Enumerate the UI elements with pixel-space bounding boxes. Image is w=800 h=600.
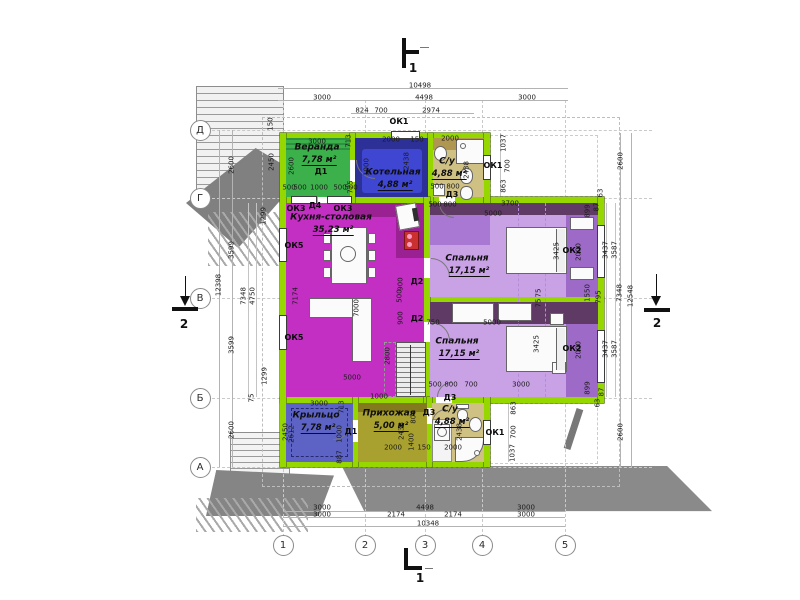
dim-label: 3700 bbox=[501, 201, 519, 208]
dim-label: 1037 bbox=[501, 134, 508, 152]
section-mark-bottom-tick bbox=[425, 568, 433, 569]
room-area-hallway: 5,00 м² bbox=[374, 422, 409, 432]
dim-label: 75 bbox=[536, 299, 543, 308]
dim-label: 10348 bbox=[417, 521, 439, 528]
stove-burner-2 bbox=[407, 242, 412, 247]
chair-2 bbox=[323, 250, 331, 261]
dim-label: 863 bbox=[501, 179, 508, 192]
section-label-left: 2 bbox=[180, 317, 188, 331]
opening-tag-д3: Д3 bbox=[446, 191, 459, 199]
room-area-bath-bottom: 4,88 м² bbox=[435, 418, 470, 428]
section-mark-top-bar-h bbox=[406, 50, 419, 54]
grid-axis-h-5 bbox=[212, 467, 652, 468]
dim-label: 500 bbox=[397, 289, 404, 302]
dim-label: 87 bbox=[599, 388, 606, 397]
dim-label: 75 bbox=[249, 394, 256, 403]
section-mark-bottom-bar-h bbox=[404, 566, 422, 570]
dim-label: 4750 bbox=[250, 287, 257, 305]
dim-label: 1000 bbox=[370, 394, 388, 401]
toilet-top-b bbox=[460, 186, 473, 200]
chair-6 bbox=[368, 267, 376, 278]
dim-label: 2000 bbox=[384, 445, 402, 452]
dim-label: 75 bbox=[536, 289, 543, 298]
chair-3 bbox=[323, 267, 331, 278]
dim-label: 2450 bbox=[269, 153, 276, 171]
opening-tag-ок1: ОК1 bbox=[484, 162, 503, 170]
dim-label: 3599 bbox=[229, 241, 236, 259]
dim-label: 3000 bbox=[313, 95, 331, 102]
section-label-bottom: 1 bbox=[416, 571, 424, 585]
grid-axis-h-1 bbox=[212, 130, 652, 131]
dim-label: 3000 bbox=[512, 382, 530, 389]
stove bbox=[404, 231, 419, 250]
dim-label: 500 bbox=[428, 202, 441, 209]
dim-label: 2800 bbox=[385, 347, 392, 365]
bedroom1-medium-left bbox=[430, 215, 490, 245]
chair-5 bbox=[368, 250, 376, 261]
dim-label: 150 bbox=[410, 137, 423, 144]
dim-label: 500 bbox=[293, 185, 306, 192]
dim-label: 3425 bbox=[534, 335, 541, 353]
room-area-boiler: 4,88 м² bbox=[378, 181, 413, 191]
dim-label: 2600 bbox=[289, 157, 296, 175]
wardrobe-2 bbox=[498, 303, 532, 321]
dim-label: 1299 bbox=[261, 207, 268, 225]
room-name-bath-top: С/у bbox=[439, 158, 455, 167]
axis-bubble-bottom-4: 4 bbox=[472, 535, 493, 556]
section-label-right: 2 bbox=[653, 316, 661, 330]
opening-tag-д4: Д4 bbox=[309, 202, 322, 210]
section-mark-right-bar bbox=[644, 308, 670, 312]
shower-head bbox=[460, 143, 466, 149]
dim-label: 63 bbox=[598, 189, 605, 198]
dim-label: 800 bbox=[444, 382, 457, 389]
dim-label: 7000 bbox=[354, 299, 361, 317]
window-ok3-b bbox=[327, 196, 352, 204]
axis-bubble-bottom-2: 2 bbox=[355, 535, 376, 556]
dim-label: 700 bbox=[505, 159, 512, 172]
dim-label: 899 bbox=[585, 381, 592, 394]
dim-label: 150 bbox=[268, 117, 275, 130]
dim-label: 2600 bbox=[229, 156, 236, 174]
dim-label: 725 bbox=[348, 180, 355, 193]
dim-label: 800 bbox=[443, 202, 456, 209]
wall-bottom bbox=[280, 462, 490, 467]
dim-label: 700 bbox=[374, 108, 387, 115]
stove-burner-1 bbox=[407, 234, 412, 239]
dim-label: 2974 bbox=[422, 108, 440, 115]
axis-bubble-left-Д: Д bbox=[190, 120, 211, 141]
opening-tag-ок5: ОК5 bbox=[285, 242, 304, 250]
room-area-bedroom-2: 17,15 м² bbox=[439, 350, 480, 360]
room-name-kitchen: Кухня-столовая bbox=[290, 214, 372, 223]
dim-label: 3437 bbox=[603, 241, 610, 259]
dim-label: 1299 bbox=[262, 367, 269, 385]
room-name-veranda: Веранда bbox=[294, 144, 339, 153]
dim-label: 750 bbox=[426, 320, 439, 327]
section-mark-right-line bbox=[656, 274, 657, 296]
dim-label: 2600 bbox=[618, 423, 625, 441]
dim-label: 7348 bbox=[617, 284, 624, 302]
dim-label: 2000 bbox=[382, 137, 400, 144]
chair-4 bbox=[368, 233, 376, 244]
dim-label: 7174 bbox=[293, 287, 300, 305]
washer-bottom-drum bbox=[437, 427, 447, 437]
dim-label: 3587 bbox=[612, 340, 619, 358]
dining-plate bbox=[340, 246, 356, 262]
dim-label: 3437 bbox=[603, 340, 610, 358]
room-area-bedroom-1: 17,15 м² bbox=[449, 267, 490, 277]
dim-label: 1000 bbox=[337, 425, 344, 443]
nightstand-1a bbox=[570, 217, 594, 230]
section-mark-right-tri bbox=[651, 296, 661, 306]
dimline-left-2 bbox=[232, 130, 233, 467]
dim-label: 12548 bbox=[628, 285, 635, 307]
dim-label: 3000 bbox=[313, 512, 331, 519]
opening-tag-д2: Д2 bbox=[411, 278, 424, 286]
opening-tag-ок2: ОК2 bbox=[563, 345, 582, 353]
dim-label: 10498 bbox=[409, 83, 431, 90]
room-area-veranda: 7,78 м² bbox=[302, 156, 337, 166]
axis-bubble-left-Б: Б bbox=[190, 388, 211, 409]
room-area-kitchen: 35,23 м² bbox=[313, 226, 354, 236]
dimline-top-3 bbox=[351, 113, 474, 114]
dim-label: 3599 bbox=[229, 336, 236, 354]
dimline-right-3 bbox=[606, 203, 607, 397]
opening-tag-д3: Д3 bbox=[423, 409, 436, 417]
axis-bubble-bottom-1: 1 bbox=[273, 535, 294, 556]
axis-bubble-left-В: В bbox=[190, 288, 211, 309]
dim-label: 3000 bbox=[518, 95, 536, 102]
dim-label: 1000 bbox=[310, 185, 328, 192]
corner-bath-drain bbox=[474, 450, 480, 456]
door-gap-d2-a bbox=[424, 258, 430, 278]
axis-bubble-left-Г: Г bbox=[190, 188, 211, 209]
section-mark-left-tri bbox=[180, 296, 190, 306]
section-label-top: 1 bbox=[409, 61, 417, 75]
opening-tag-д1: Д1 bbox=[315, 168, 328, 176]
opening-tag-д3: Д3 bbox=[444, 394, 457, 402]
dim-label: 5000 bbox=[343, 375, 361, 382]
dim-label: 4498 bbox=[415, 95, 433, 102]
wardrobe-3 bbox=[550, 313, 564, 325]
room-name-bedroom-2: Спальня bbox=[435, 338, 478, 347]
sink-bottom bbox=[469, 417, 482, 432]
dim-label: 4498 bbox=[416, 505, 434, 512]
dim-label: 7348 bbox=[241, 287, 248, 305]
opening-tag-ок1: ОК1 bbox=[486, 429, 505, 437]
bedroom2-medium-right bbox=[566, 324, 598, 397]
dim-label: 2600 bbox=[618, 152, 625, 170]
overhang-notch-bottom-right bbox=[490, 403, 598, 464]
dim-label: 824 bbox=[355, 108, 368, 115]
dim-label: 1400 bbox=[409, 433, 416, 451]
dim-label: 1037 bbox=[510, 444, 517, 462]
floor-plan-canvas: 1049830004498300082470029743000260050050… bbox=[0, 0, 800, 600]
dim-label: 700 bbox=[511, 425, 518, 438]
room-name-hallway: Прихожая bbox=[362, 410, 415, 419]
dim-label: 2612 bbox=[289, 425, 296, 443]
dim-label: 2174 bbox=[387, 512, 405, 519]
dim-label: 87 bbox=[594, 203, 601, 212]
dimline-left-1 bbox=[219, 130, 220, 467]
dim-label: 3587 bbox=[612, 241, 619, 259]
stairs bbox=[396, 342, 426, 397]
opening-tag-ок5: ОК5 bbox=[285, 334, 304, 342]
dim-label: 795 bbox=[596, 290, 603, 303]
dim-label: 3000 bbox=[517, 512, 535, 519]
section-mark-left-line bbox=[185, 276, 186, 296]
dim-label: 900 bbox=[398, 311, 405, 324]
dim-label: 1550 bbox=[585, 284, 592, 302]
room-name-bedroom-1: Спальня bbox=[445, 255, 488, 264]
room-name-bath-bottom: С/у bbox=[442, 406, 458, 415]
dim-label: 5000 bbox=[483, 320, 501, 327]
dim-label: 700 bbox=[464, 382, 477, 389]
room-name-boiler: Котельная bbox=[365, 169, 420, 178]
section-mark-bottom-bar-v bbox=[404, 548, 408, 568]
dim-label: 2000 bbox=[444, 445, 462, 452]
dim-label: 2174 bbox=[444, 512, 462, 519]
dim-label: 3000 bbox=[310, 401, 328, 408]
stairs-center-line bbox=[410, 345, 411, 395]
dim-label: 2000 bbox=[441, 136, 459, 143]
section-mark-left-bar bbox=[172, 307, 198, 311]
dim-label: 500 bbox=[430, 184, 443, 191]
axis-bubble-bottom-5: 5 bbox=[555, 535, 576, 556]
dim-label: 887 bbox=[337, 450, 344, 463]
opening-tag-д2: Д2 bbox=[411, 315, 424, 323]
dim-label: 863 bbox=[511, 401, 518, 414]
dim-label: 3425 bbox=[554, 242, 561, 260]
dim-label: 2600 bbox=[229, 421, 236, 439]
opening-tag-ок2: ОК2 bbox=[563, 247, 582, 255]
axis-bubble-left-А: А bbox=[190, 457, 211, 478]
opening-tag-д1: Д1 bbox=[345, 428, 358, 436]
room-area-porch: 7,78 м² bbox=[301, 424, 336, 434]
door-gap-d1-veranda bbox=[350, 160, 355, 182]
dim-label: 899 bbox=[585, 204, 592, 217]
dim-label: 150 bbox=[417, 445, 430, 452]
dim-label: 12398 bbox=[216, 274, 223, 296]
dim-label: 63 bbox=[595, 399, 602, 408]
opening-tag-ок1: ОК1 bbox=[390, 118, 409, 126]
dim-label: 5000 bbox=[484, 211, 502, 218]
dim-label: 713 bbox=[346, 134, 353, 147]
room-area-bath-top: 4,88 м² bbox=[432, 170, 467, 180]
room-name-porch: Крыльцо bbox=[292, 412, 339, 421]
section-mark-top-tick bbox=[420, 47, 429, 48]
axis-bubble-bottom-3: 3 bbox=[415, 535, 436, 556]
nightstand-1b bbox=[570, 267, 594, 280]
dim-label: 500 bbox=[428, 382, 441, 389]
dim-label: 713 bbox=[339, 400, 346, 413]
